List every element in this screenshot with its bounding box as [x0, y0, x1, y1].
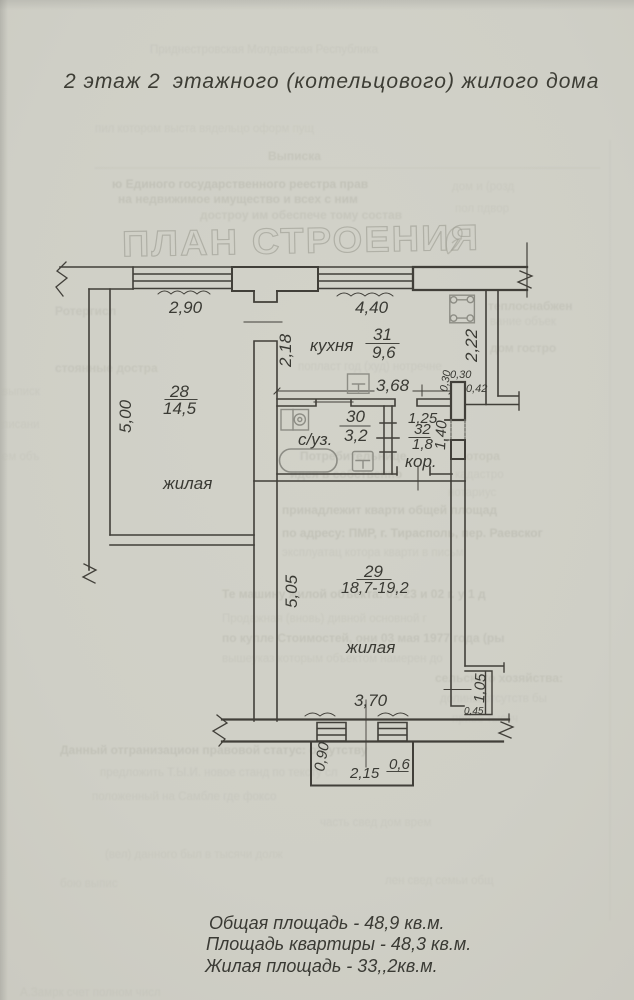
svg-text:1,05: 1,05 [471, 673, 490, 704]
svg-text:положенный на Самбле где фоксо: положенный на Самбле где фоксо [92, 791, 276, 803]
svg-text:дом гостро: дом гостро [490, 341, 556, 355]
svg-text:ем объ: ем объ [2, 451, 39, 463]
svg-text:сельского хозяйства:: сельского хозяйства: [435, 671, 563, 685]
svg-text:пил котором выста вядельцо оф: пил котором выста вядельцо оформ пущ [95, 123, 315, 135]
svg-text:А.Замрк счет полном числ: А.Замрк счет полном числ [20, 987, 161, 999]
svg-text:кадастро: кадастро [455, 469, 504, 481]
svg-text:ю Единого государственного рее: ю Единого государственного реестра прав [112, 177, 368, 191]
svg-text:2,18: 2,18 [276, 333, 295, 368]
svg-text:(вел) данного был в тысячи дол: (вел) данного был в тысячи долж [105, 849, 283, 861]
svg-text:часть свед дом врем: часть свед дом врем [320, 817, 431, 829]
svg-text:3,68: 3,68 [376, 376, 410, 395]
svg-text:дом и (розд: дом и (розд [452, 181, 514, 193]
svg-text:1,8: 1,8 [412, 436, 434, 453]
svg-text:Жилая площадь - 33,,2кв.м.: Жилая площадь - 33,,2кв.м. [204, 956, 438, 976]
svg-text:вание объек: вание объек [490, 316, 557, 328]
svg-text:31: 31 [373, 325, 392, 344]
svg-text:3,70: 3,70 [354, 691, 388, 710]
svg-text:пол пдвор: пол пдвор [455, 203, 509, 215]
svg-text:0,45: 0,45 [464, 706, 484, 717]
svg-text:0,42: 0,42 [466, 383, 487, 395]
svg-text:1,40: 1,40 [432, 420, 451, 451]
svg-text:выписк: выписк [2, 386, 41, 398]
svg-text:жилая: жилая [345, 638, 395, 657]
svg-text:нотариус: нотариус [448, 487, 496, 499]
svg-text:кор.: кор. [405, 452, 437, 471]
svg-text:вышеуказ которым объектом наме: вышеуказ которым объектом намерен до [222, 653, 443, 665]
svg-text:2,15: 2,15 [349, 765, 380, 782]
svg-text:теплоснабжен: теплоснабжен [488, 299, 573, 313]
svg-text:0,30: 0,30 [450, 369, 472, 381]
svg-text:лен свед семьи общ: лен свед семьи общ [385, 875, 494, 887]
svg-text:14,5: 14,5 [163, 399, 197, 418]
svg-text:попласт год (худ) нотречне: попласт год (худ) нотречне [298, 361, 442, 373]
svg-text:Площадь квартиры - 48,3 кв.м.: Площадь квартиры - 48,3 кв.м. [206, 934, 471, 954]
svg-text:ПЛАН СТРОЕНИЯ: ПЛАН СТРОЕНИЯ [122, 217, 481, 265]
svg-text:4,40: 4,40 [355, 298, 389, 317]
svg-text:2,22: 2,22 [462, 328, 481, 363]
svg-text:Продажная (вновь) дивной осно: Продажная (вновь) дивной основной г [222, 613, 427, 625]
svg-text:эксплуатац котора кварти в пис: эксплуатац котора кварти в письм [282, 547, 464, 559]
svg-text:бою выпис: бою выпис [60, 878, 118, 890]
svg-text:3,2: 3,2 [344, 426, 368, 445]
svg-text:на недвижимое имущество и всех: на недвижимое имущество и всех с ним [118, 192, 358, 206]
svg-text:стоянные достра: стоянные достра [55, 361, 158, 375]
svg-text:долины отсутств бы: долины отсутств бы [440, 693, 547, 705]
svg-text:Ротергисл: Ротергисл [55, 304, 116, 318]
svg-text:0,6: 0,6 [389, 756, 411, 773]
svg-text:30: 30 [346, 407, 365, 426]
svg-text:Выписка: Выписка [268, 149, 321, 163]
svg-text:9,6: 9,6 [372, 343, 396, 362]
svg-text:Приднестровская Молдавская Рес: Приднестровская Молдавская Республика [150, 44, 379, 56]
svg-text:котора: котора [460, 449, 500, 463]
svg-text:писани: писани [2, 419, 40, 431]
svg-text:2 этаж 2 этажного (котельцово: 2 этаж 2 этажного (котельцового) жилого … [63, 70, 599, 93]
svg-text:жилая: жилая [162, 474, 212, 493]
svg-text:кухня: кухня [310, 336, 353, 355]
svg-text:5,00: 5,00 [116, 399, 135, 433]
svg-text:18,7-19,2: 18,7-19,2 [341, 580, 409, 597]
svg-text:по адресу: ПМР, г. Тирасполь,: по адресу: ПМР, г. Тирасполь, пер. Раевс… [282, 526, 543, 540]
svg-text:2,90: 2,90 [168, 298, 203, 317]
svg-text:предложить Т.Ы.И. новое станд: предложить Т.Ы.И. новое станд по тексту … [100, 767, 337, 779]
svg-text:с/уз.: с/уз. [298, 430, 332, 449]
svg-text:5,05: 5,05 [282, 574, 301, 608]
svg-text:Общая площадь - 48,9 кв.м.: Общая площадь - 48,9 кв.м. [209, 913, 445, 933]
svg-text:29: 29 [363, 562, 383, 581]
